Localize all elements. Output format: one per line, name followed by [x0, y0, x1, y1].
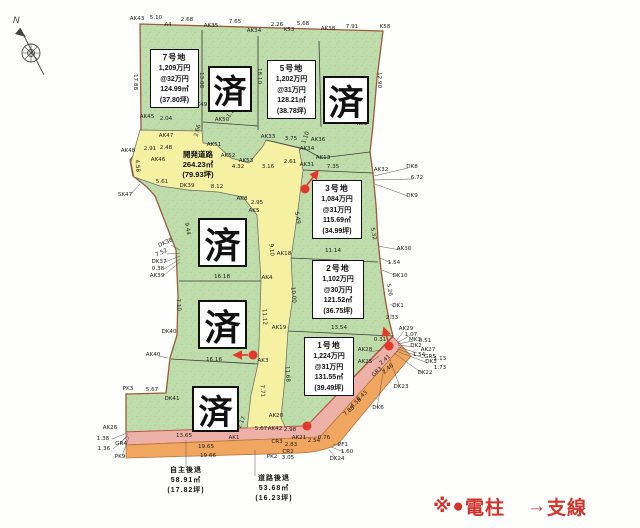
survey-label: DK37 [151, 259, 167, 265]
plot3-name: 3号地 [313, 183, 361, 195]
utility-pole-marker [301, 185, 310, 194]
survey-label: 11.14 [325, 248, 341, 254]
compass-north-label: N [13, 15, 20, 25]
survey-label: PK3 [123, 386, 134, 392]
plot1-name: 1号地 [305, 340, 353, 352]
survey-label: 13.54 [331, 325, 347, 331]
survey-label: 6.72 [411, 175, 423, 181]
sold-stamp-plot6: 済 [208, 66, 252, 112]
survey-label: 18.10 [256, 68, 262, 84]
development-road-annotation: 開発道路 264.23㎡ (79.93坪) [156, 150, 240, 180]
plot1-info-box: 1号地 1,224万円 @31万円 131.55㎡ (39.49坪) [304, 337, 354, 396]
legend-pole-label: 電柱 [465, 493, 505, 520]
survey-label: DK23 [393, 384, 409, 390]
survey-label: 0.31 [374, 337, 387, 343]
sold-stamp-bottom: 済 [192, 386, 239, 432]
survey-label: PF1 [338, 442, 349, 448]
survey-label: AK35 [204, 23, 219, 29]
road-setback-area: 53.68㎡ [228, 484, 320, 494]
survey-label: PK2 [267, 454, 278, 460]
survey-label: AK19 [272, 325, 287, 331]
survey-label: AK38 [321, 26, 336, 32]
survey-label: DK9 [406, 193, 418, 199]
plot2-area: 121.52㎡ [313, 296, 363, 307]
plot1-area: 131.55㎡ [305, 373, 353, 384]
survey-label: AK1 [228, 435, 239, 441]
survey-label: AK42 [268, 426, 283, 432]
survey-label: 3.16 [262, 164, 275, 170]
compass-rose: N [13, 15, 44, 75]
plot7-tsubo: (37.80坪) [151, 96, 198, 107]
survey-label: CR3 [271, 439, 283, 445]
survey-label: 16.16 [206, 357, 222, 363]
legend-note-mark: ※ [433, 495, 452, 518]
plot3-unit-price: @31万円 [313, 206, 361, 217]
survey-label: AK26 [103, 425, 118, 431]
self-setback-area: 58.91㎡ [140, 476, 232, 486]
survey-label: 5.26 [385, 283, 393, 297]
survey-label: 5.67 [146, 387, 159, 393]
legend-wire-label: 支線 [547, 493, 587, 520]
survey-label: DK22 [417, 370, 432, 376]
survey-label: 4.58 [133, 159, 140, 172]
survey-label: 3.75 [285, 136, 298, 142]
sold-stamp-mid-upper: 済 [198, 218, 247, 267]
survey-label: 5.67 [255, 426, 268, 432]
survey-label: A4 [164, 22, 172, 28]
survey-label: AK25 [358, 359, 373, 365]
self-setback-label: 自主後退 [140, 466, 232, 476]
plot2-name: 2号地 [313, 263, 363, 275]
survey-label: 2.04 [160, 116, 173, 122]
survey-label: AK34 [300, 146, 315, 152]
plot5-info-box: 5号地 1,202万円 @31万円 128.21㎡ (38.78坪) [267, 60, 316, 119]
survey-label: 11.68 [284, 366, 291, 383]
survey-label: 3.05 [282, 455, 295, 461]
road-setback-tsubo: (16.23坪) [228, 494, 320, 504]
survey-label: 2.26 [271, 22, 284, 28]
survey-label: AK30 [397, 246, 412, 252]
survey-label: 11.12 [261, 309, 268, 325]
survey-label: DK39 [179, 183, 195, 189]
survey-label: AK34 [247, 28, 262, 34]
survey-label: AK33 [261, 134, 276, 140]
plot2-info-box: 2号地 1,102万円 @30万円 121.52㎡ (36.75坪) [312, 260, 364, 319]
survey-label: GR4 [115, 441, 127, 447]
plot5-tsubo: (38.78坪) [268, 107, 315, 118]
survey-label: K58 [380, 24, 391, 30]
self-setback-tsubo: (17.82坪) [140, 486, 232, 496]
survey-label: AK3 [257, 358, 268, 364]
survey-label: 16.18 [214, 274, 230, 280]
plot5-name: 5号地 [268, 63, 315, 75]
survey-label: 7.91 [346, 24, 359, 30]
survey-label: DK6 [372, 405, 384, 411]
survey-label: 1.73 [434, 365, 447, 371]
survey-label: 1.36 [98, 446, 111, 452]
survey-label: AK4 [261, 275, 272, 281]
survey-label: AK28 [358, 347, 373, 353]
survey-label: 2.68 [181, 17, 194, 23]
survey-label: 2.98 [284, 427, 297, 433]
survey-label: 8.12 [211, 184, 223, 190]
plot7-unit-price: @32万円 [151, 75, 198, 86]
plot2-tsubo: (36.75坪) [313, 307, 363, 318]
survey-label: PK9 [115, 454, 126, 460]
survey-label: AK13 [316, 155, 331, 161]
survey-label: AK18 [277, 251, 292, 257]
plot7-info-box: 7号地 1,209万円 @32万円 124.99㎡ (37.80坪) [150, 49, 199, 108]
survey-label: 19.66 [200, 453, 216, 459]
plot3-info-box: 3号地 1,084万円 @31万円 115.69㎡ (34.99坪) [312, 180, 362, 239]
survey-label: 13.65 [176, 433, 192, 439]
survey-label: AK45 [140, 114, 155, 120]
plot7-price: 1,209万円 [151, 64, 198, 75]
survey-label: AK43 [130, 16, 145, 22]
survey-label: 1.38 [97, 436, 110, 442]
plot2-unit-price: @30万円 [313, 286, 363, 297]
legend: ※●電柱→支線 [433, 493, 587, 520]
survey-label: 2.83 [285, 442, 298, 448]
plot7-area: 124.99㎡ [151, 85, 198, 96]
development-road-area-value: 264.23㎡ [156, 160, 240, 170]
sold-stamp-plot4: 済 [323, 76, 369, 124]
survey-label: DK40 [161, 329, 177, 335]
survey-label: 2.61 [284, 159, 297, 165]
survey-label: AK40 [146, 352, 161, 358]
survey-label: 2.33 [386, 315, 399, 321]
sold-stamp-mid-lower: 済 [198, 300, 247, 349]
survey-label: AK5 [248, 208, 259, 214]
self-setback-annotation: 自主後退 58.91㎡ (17.82坪) [140, 466, 232, 496]
survey-label: AK47 [159, 133, 174, 139]
plot2-price: 1,102万円 [313, 275, 363, 286]
road-setback-label: 道路後退 [228, 474, 320, 484]
wire-arrow-icon: → [527, 496, 547, 518]
road-setback-annotation: 道路後退 53.68㎡ (16.23坪) [228, 474, 320, 504]
survey-label: 7.71 [259, 385, 266, 398]
survey-label: AK8 [236, 196, 247, 202]
survey-label: AK51 [207, 142, 222, 148]
plot3-tsubo: (34.99坪) [313, 227, 361, 238]
development-road-name: 開発道路 [156, 150, 240, 160]
survey-label: 7.35 [327, 164, 340, 170]
plot5-area: 128.21㎡ [268, 96, 315, 107]
survey-label: AK36 [311, 137, 326, 143]
survey-label: AK31 [300, 162, 315, 168]
plot3-price: 1,084万円 [313, 195, 361, 206]
survey-label: 7.52 [155, 248, 169, 259]
survey-label: AK48 [121, 148, 136, 154]
survey-label: DK24 [329, 456, 345, 462]
plot5-unit-price: @31万円 [268, 86, 315, 97]
plot3-area: 115.69㎡ [313, 216, 361, 227]
survey-label: 1.60 [341, 449, 354, 455]
survey-label: DK41 [164, 396, 180, 402]
survey-label: 9.10 [267, 243, 274, 256]
plot1-unit-price: @31万円 [305, 363, 353, 374]
survey-label: DK1 [392, 303, 404, 309]
survey-label: AK32 [374, 167, 389, 173]
utility-pole-marker [249, 351, 258, 360]
survey-label: K53 [284, 27, 295, 33]
survey-label: 17.88 [132, 74, 138, 90]
plot7-name: 7号地 [151, 52, 198, 64]
survey-label: 0.76 [318, 435, 331, 441]
plot1-tsubo: (39.49坪) [305, 384, 353, 395]
survey-label: 12.90 [376, 72, 382, 88]
plot5-price: 1,202万円 [268, 75, 315, 86]
survey-label: 0.38 [152, 266, 165, 272]
survey-label: 5.10 [150, 15, 163, 21]
survey-label: 19.65 [198, 444, 214, 450]
survey-label: DK8 [406, 164, 418, 170]
plot1-price: 1,224万円 [305, 352, 353, 363]
utility-pole-marker [303, 422, 312, 431]
development-road-tsubo: (79.93坪) [156, 170, 240, 180]
survey-label: 2.91 [144, 146, 157, 152]
survey-label: DK38 [157, 237, 174, 249]
land-plot-map-page: N AK435.10A42.68AK357.65AK342.26K535.68A… [0, 0, 640, 528]
survey-label: AK21 [292, 435, 307, 441]
survey-label: 5.68 [297, 21, 310, 27]
survey-label: 7.10 [174, 298, 181, 311]
survey-label: AK20 [269, 413, 284, 419]
survey-label: 2.95 [251, 200, 264, 206]
survey-label: SK47 [118, 192, 133, 198]
pole-dot-icon: ● [452, 496, 464, 518]
survey-label: 1.54 [388, 260, 401, 266]
survey-label: DK10 [392, 273, 408, 279]
survey-label: 7.65 [229, 19, 242, 25]
survey-label: AK39 [150, 273, 165, 279]
